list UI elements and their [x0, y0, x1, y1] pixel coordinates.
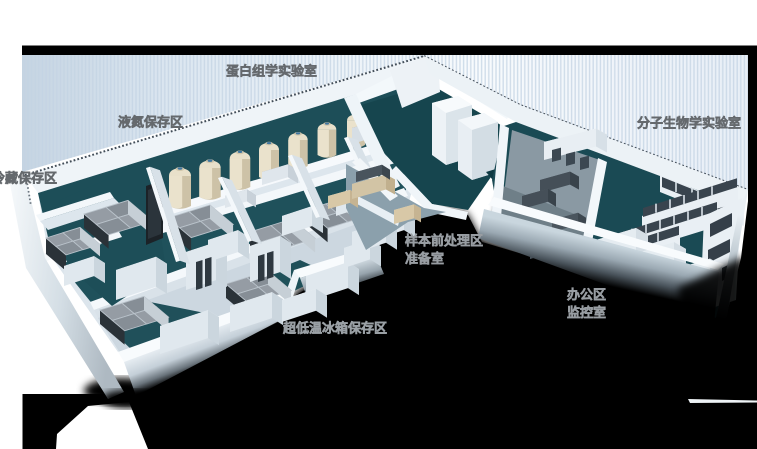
svg-text:准备室: 准备室: [405, 251, 444, 266]
svg-text:分子生物学实验室: 分子生物学实验室: [637, 116, 741, 131]
svg-text:冷藏保存区: 冷藏保存区: [0, 171, 57, 186]
svg-text:蛋白组学实验室: 蛋白组学实验室: [226, 64, 317, 79]
svg-text:液氮保存区: 液氮保存区: [118, 115, 183, 130]
svg-text:样本前处理区: 样本前处理区: [405, 233, 483, 248]
svg-text:超低温冰箱保存区: 超低温冰箱保存区: [283, 321, 387, 336]
svg-text:监控室: 监控室: [567, 305, 606, 320]
svg-text:办公区: 办公区: [567, 287, 606, 302]
